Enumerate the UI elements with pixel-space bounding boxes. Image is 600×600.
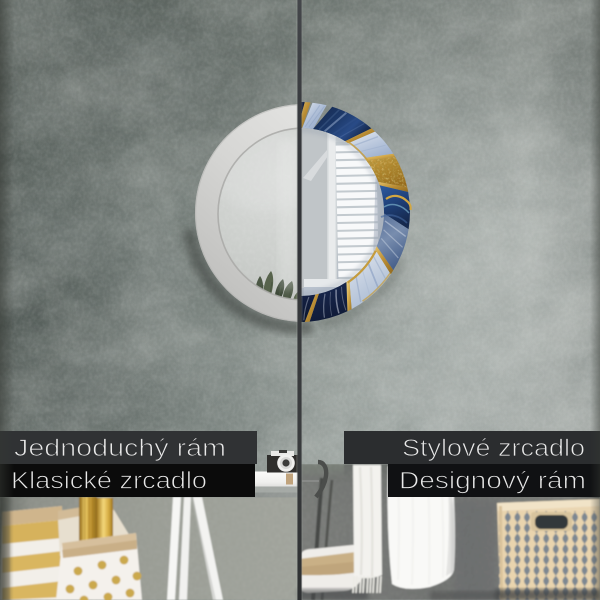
svg-text:Klasické zrcadlo: Klasické zrcadlo bbox=[11, 468, 207, 495]
svg-text:Stylové zrcadlo: Stylové zrcadlo bbox=[402, 435, 585, 462]
svg-text:Jednoduchý rám: Jednoduchý rám bbox=[14, 435, 226, 462]
svg-text:Designový rám: Designový rám bbox=[399, 468, 586, 495]
